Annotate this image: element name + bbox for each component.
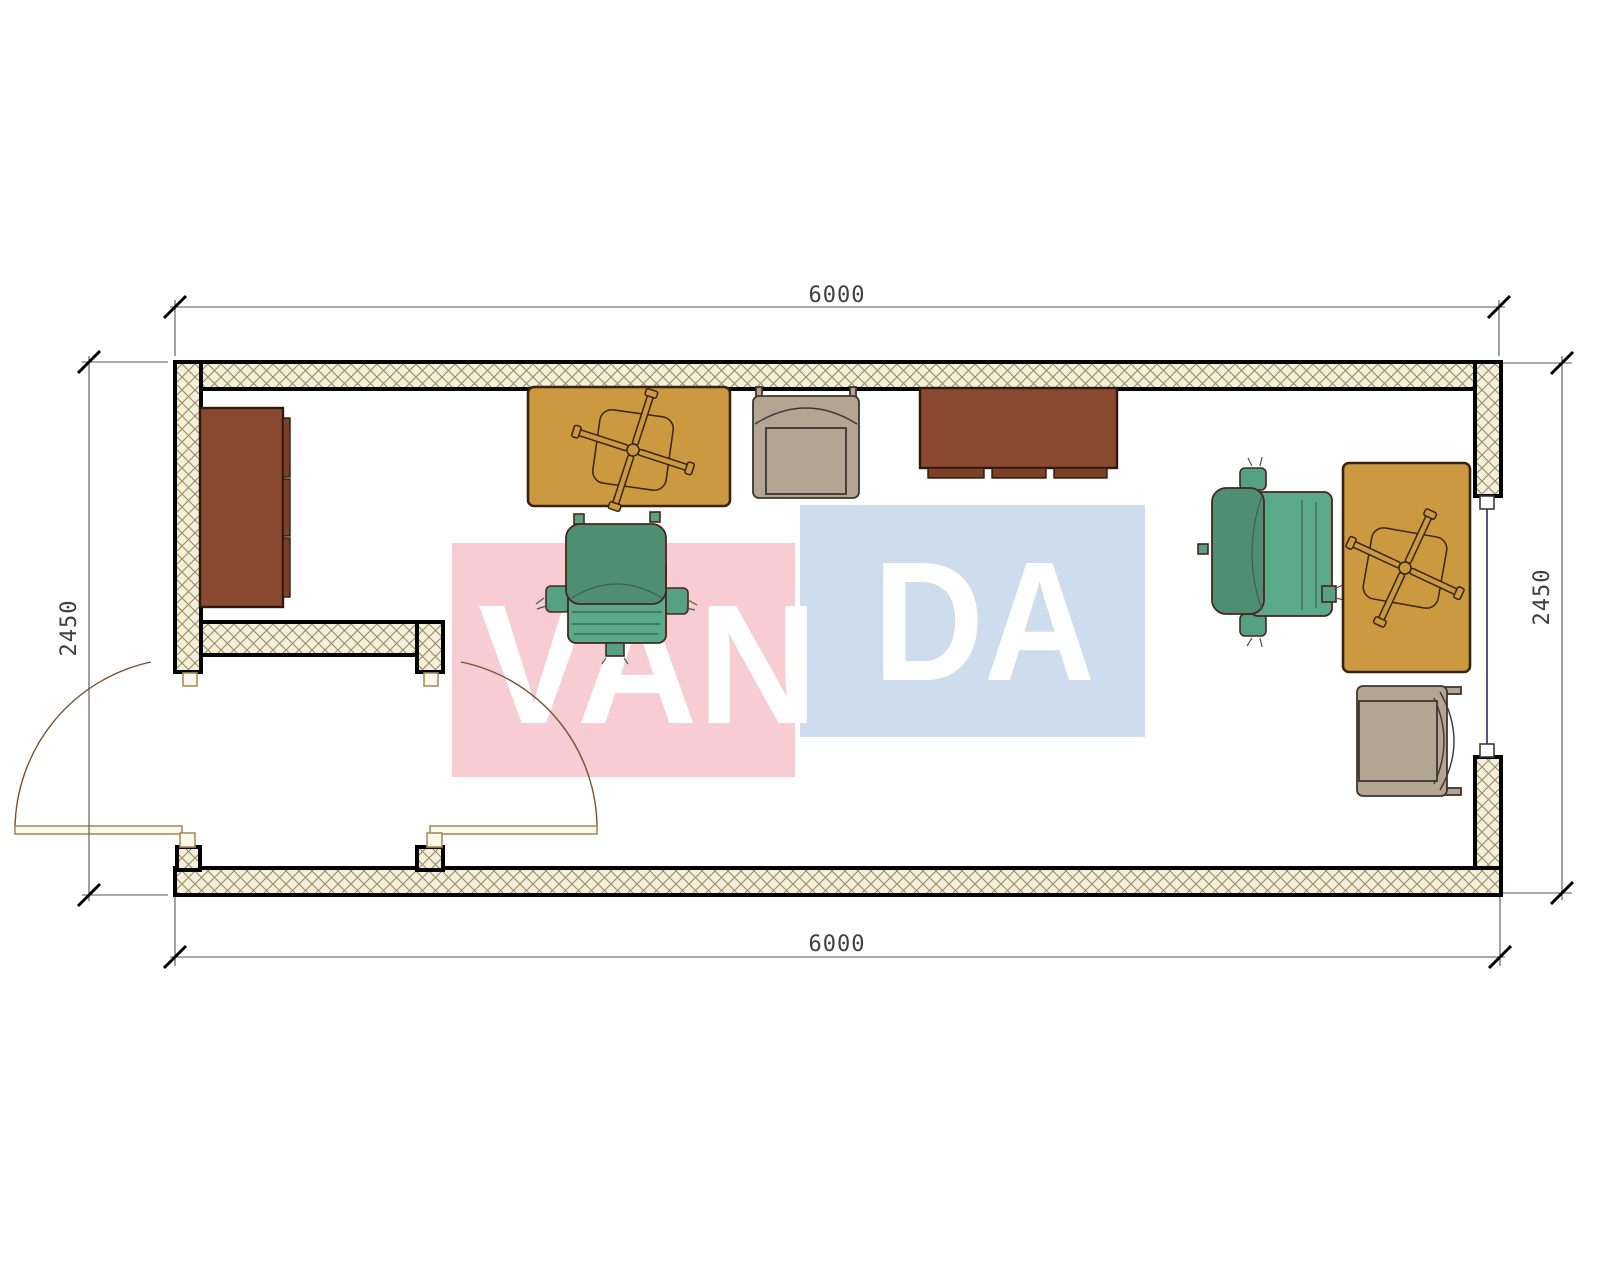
watermark: VAN DA bbox=[452, 505, 1145, 777]
wall-bottom bbox=[175, 868, 1501, 895]
dimension-left: 2450 bbox=[57, 351, 168, 906]
window-frame-bottom bbox=[1480, 744, 1494, 757]
partition-door-jamb bbox=[417, 622, 443, 672]
door-leaf-left bbox=[15, 826, 182, 834]
dimension-top: 6000 bbox=[164, 283, 1510, 356]
dimension-right: 2450 bbox=[1503, 352, 1573, 904]
door-frame-block bbox=[183, 673, 197, 686]
door-swing-arc-left bbox=[15, 662, 151, 830]
dimension-label-right: 2450 bbox=[1530, 569, 1555, 626]
floor-plan-drawing: VAN DA 6000 bbox=[0, 0, 1600, 1280]
door-post-right bbox=[417, 847, 443, 870]
door-post-left bbox=[177, 847, 200, 870]
dimension-label-top: 6000 bbox=[809, 283, 866, 308]
window bbox=[1480, 496, 1494, 757]
armchair-icon bbox=[753, 387, 859, 498]
window-frame-top bbox=[1480, 496, 1494, 509]
armchair-icon bbox=[1357, 686, 1461, 796]
office-chair-icon bbox=[1198, 457, 1344, 647]
door-hinge-block bbox=[180, 833, 195, 847]
floor-plan-canvas: VAN DA 6000 bbox=[0, 0, 1600, 1280]
dimension-label-left: 2450 bbox=[57, 600, 82, 657]
tv-stand-icon bbox=[920, 388, 1117, 478]
partition-wall bbox=[201, 622, 443, 655]
door-leaf-right bbox=[430, 826, 597, 834]
cabinet-icon bbox=[200, 408, 290, 607]
wall-top bbox=[175, 362, 1501, 389]
wall-right-lower bbox=[1475, 757, 1501, 868]
dimension-label-bottom: 6000 bbox=[809, 932, 866, 957]
dimension-bottom: 6000 bbox=[164, 897, 1511, 968]
desk-with-swivel-chair-icon bbox=[528, 371, 730, 530]
watermark-text-da: DA bbox=[873, 527, 1095, 717]
desk-with-swivel-chair-icon bbox=[1321, 463, 1488, 672]
door-hinge-block bbox=[427, 833, 442, 847]
door-frame-block bbox=[424, 673, 438, 686]
wall-right-upper bbox=[1475, 362, 1501, 496]
wall-left bbox=[175, 362, 201, 672]
